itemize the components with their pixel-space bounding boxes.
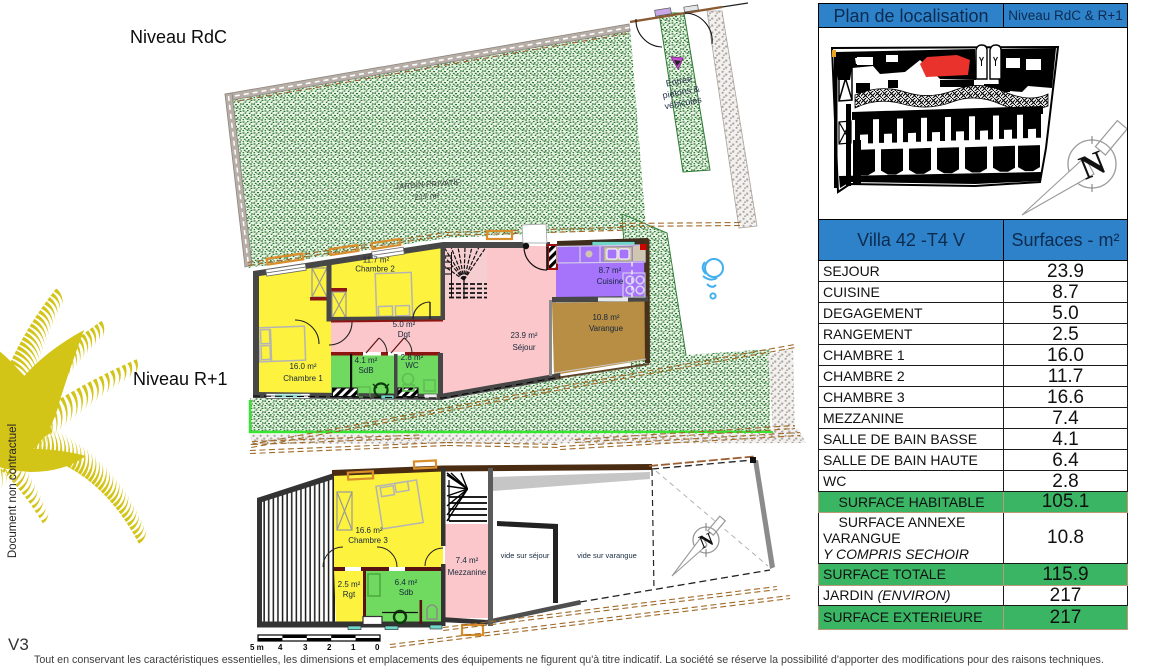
svg-text:0: 0 — [375, 643, 380, 652]
svg-text:Dgt: Dgt — [398, 330, 411, 339]
svg-text:Mezzanine: Mezzanine — [448, 568, 487, 577]
svg-text:7.4 m²: 7.4 m² — [456, 556, 479, 565]
svg-text:1: 1 — [351, 643, 356, 652]
svg-text:vide sur varangue: vide sur varangue — [577, 551, 637, 560]
svg-text:6.4 m²: 6.4 m² — [395, 578, 418, 587]
svg-text:2: 2 — [327, 643, 332, 652]
svg-text:vide sur séjour: vide sur séjour — [501, 551, 550, 560]
svg-text:WC: WC — [405, 361, 419, 370]
svg-text:3: 3 — [303, 643, 308, 652]
svg-text:Chambre 1: Chambre 1 — [283, 374, 323, 383]
svg-text:16.6 m²: 16.6 m² — [355, 526, 382, 535]
svg-text:Chambre 3: Chambre 3 — [348, 536, 388, 545]
svg-text:10.8 m²: 10.8 m² — [592, 313, 619, 322]
svg-text:Cuisine: Cuisine — [597, 277, 624, 286]
svg-text:5 m: 5 m — [250, 643, 264, 652]
svg-text:8.7 m²: 8.7 m² — [599, 266, 622, 275]
svg-text:Séjour: Séjour — [512, 343, 535, 352]
svg-text:4: 4 — [278, 643, 283, 652]
svg-text:5.0 m²: 5.0 m² — [393, 320, 416, 329]
svg-text:16.0 m²: 16.0 m² — [289, 362, 316, 371]
svg-text:Varangue: Varangue — [589, 324, 624, 333]
svg-text:4.1 m²: 4.1 m² — [355, 356, 378, 365]
svg-text:Sdb: Sdb — [399, 588, 414, 597]
svg-text:Rgt: Rgt — [343, 590, 356, 599]
svg-text:Chambre 2: Chambre 2 — [355, 265, 395, 274]
svg-text:SdB: SdB — [358, 366, 373, 375]
svg-text:2.5 m²: 2.5 m² — [338, 580, 361, 589]
svg-text:23.9 m²: 23.9 m² — [510, 331, 537, 340]
svg-text:11.7 m²: 11.7 m² — [363, 256, 390, 265]
svg-text:217 m²: 217 m² — [414, 191, 440, 202]
